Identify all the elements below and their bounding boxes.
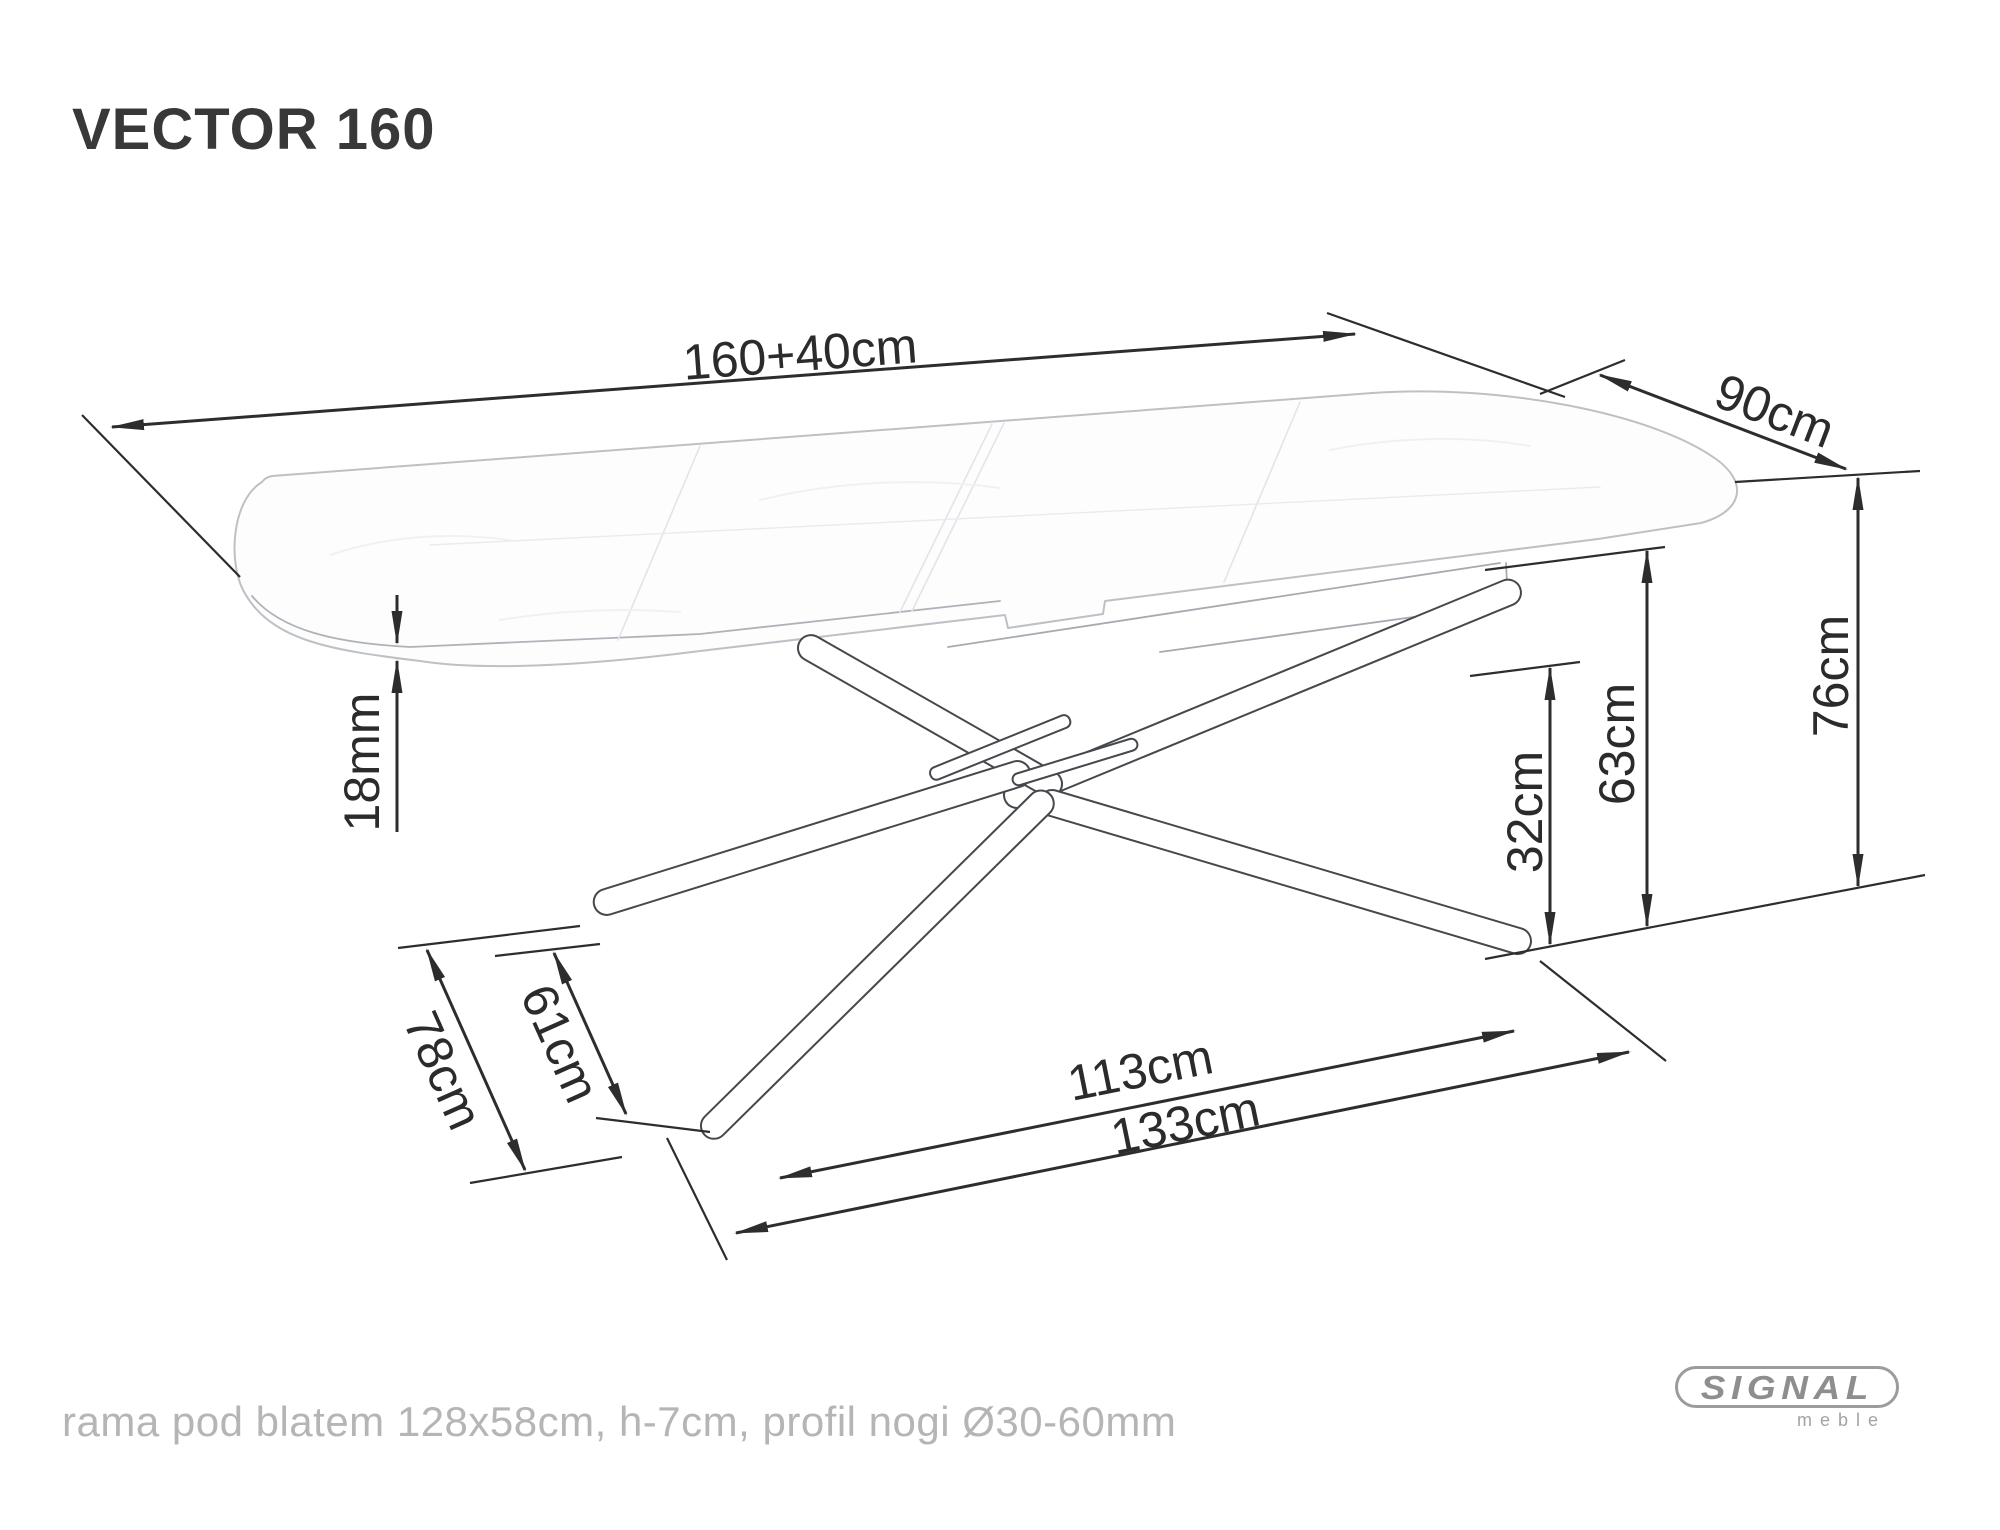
tabletop — [235, 391, 1738, 666]
dim-label-feet-span-side: 78cm — [393, 1003, 494, 1137]
dim-label-tabletop-depth: 90cm — [1708, 363, 1842, 459]
extension-line — [470, 1157, 622, 1183]
technical-drawing: 160+40cm90cm76cm63cm32cm18mm78cm61cm113c… — [0, 0, 2000, 1530]
extension-line — [667, 1138, 727, 1260]
furniture-dimension-sheet: VECTOR 160 — [0, 0, 2000, 1530]
leg-front-left — [696, 785, 1060, 1144]
extension-line — [1540, 360, 1625, 394]
extension-line — [1540, 961, 1666, 1061]
signal-logo: SIGNAL — [1675, 1366, 1899, 1408]
extension-line — [596, 1118, 710, 1132]
extension-line — [82, 415, 240, 577]
signal-logo-subtext: meble — [1768, 1411, 1886, 1429]
table-base-legs — [590, 576, 1534, 1145]
dim-label-top-thickness: 18mm — [334, 693, 390, 832]
dim-label-hub-height: 32cm — [1497, 751, 1553, 873]
extension-line — [1327, 313, 1565, 397]
extension-line — [398, 926, 580, 948]
extension-line — [1735, 471, 1920, 482]
extension-line — [495, 944, 600, 956]
dim-label-underframe-height: 63cm — [1589, 683, 1645, 805]
leg-front-right — [1036, 787, 1534, 957]
spec-note: rama pod blatem 128x58cm, h-7cm, profil … — [62, 1398, 1176, 1446]
signal-logo-text: SIGNAL — [1700, 1371, 1873, 1404]
extension-line — [1470, 662, 1580, 676]
tabletop-surface-outline — [235, 391, 1738, 666]
dim-label-tabletop-length: 160+40cm — [681, 317, 919, 390]
dim-label-table-height: 76cm — [1803, 615, 1859, 737]
